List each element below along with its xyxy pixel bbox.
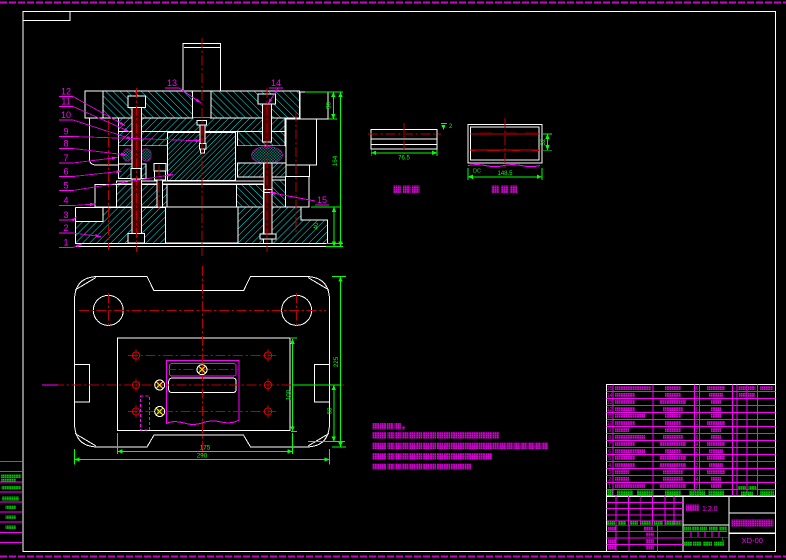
svg-text:225: 225	[333, 356, 340, 367]
svg-text:1: 1	[63, 238, 68, 248]
svg-text:2: 2	[63, 223, 68, 233]
svg-text:4: 4	[63, 196, 68, 206]
svg-text:11: 11	[607, 414, 612, 420]
svg-text:14: 14	[271, 78, 281, 88]
svg-text:1: 1	[696, 456, 699, 462]
svg-text:6: 6	[696, 386, 699, 392]
svg-text:15: 15	[607, 386, 613, 392]
svg-text:1: 1	[608, 484, 611, 490]
svg-text:164: 164	[332, 155, 339, 166]
svg-text:7: 7	[608, 442, 611, 448]
svg-text:2: 2	[696, 463, 699, 469]
svg-text:2: 2	[696, 428, 699, 434]
svg-text:13: 13	[167, 78, 177, 88]
svg-text:11: 11	[61, 97, 70, 107]
svg-text:7: 7	[63, 153, 68, 163]
svg-text:148.5: 148.5	[497, 171, 513, 177]
svg-text:6: 6	[696, 407, 699, 413]
svg-text:14: 14	[607, 393, 613, 399]
svg-text:12: 12	[607, 407, 613, 413]
svg-text:4: 4	[696, 442, 699, 448]
svg-text:3: 3	[63, 210, 68, 220]
svg-text:3: 3	[608, 470, 611, 476]
svg-text:60: 60	[327, 407, 334, 415]
svg-text:9: 9	[608, 428, 611, 434]
svg-text:2: 2	[696, 400, 699, 406]
svg-text:290: 290	[197, 453, 208, 460]
svg-text:1: 1	[696, 393, 699, 399]
svg-text:2: 2	[696, 484, 699, 490]
svg-text:DC: DC	[473, 169, 481, 175]
svg-text:100: 100	[285, 389, 292, 400]
svg-text:6: 6	[63, 167, 68, 177]
svg-text:6: 6	[696, 470, 699, 476]
svg-text:12: 12	[61, 87, 71, 97]
svg-text:9: 9	[63, 127, 68, 137]
svg-text:15: 15	[317, 195, 327, 205]
svg-text:6: 6	[696, 435, 699, 441]
svg-text:4: 4	[696, 477, 699, 483]
svg-text:8: 8	[63, 139, 68, 149]
svg-text:6: 6	[696, 414, 699, 420]
svg-text:2: 2	[696, 449, 699, 455]
svg-text:32: 32	[540, 138, 547, 146]
svg-text:13: 13	[607, 400, 613, 406]
svg-text:5: 5	[608, 456, 611, 462]
svg-text:5: 5	[63, 181, 68, 191]
svg-text:30: 30	[326, 102, 333, 110]
svg-text:6: 6	[608, 449, 611, 455]
svg-text:4: 4	[608, 463, 611, 469]
svg-text:10: 10	[607, 421, 613, 427]
svg-text:40: 40	[313, 222, 320, 230]
svg-text:2: 2	[608, 477, 611, 483]
svg-text:8: 8	[608, 435, 611, 441]
svg-text:1: 1	[696, 421, 699, 427]
svg-text:1:2.0: 1:2.0	[702, 506, 718, 513]
svg-text:76.5: 76.5	[398, 156, 410, 162]
svg-text:175: 175	[200, 444, 211, 451]
svg-text:10: 10	[61, 110, 71, 120]
svg-text:XD-00: XD-00	[742, 536, 763, 545]
